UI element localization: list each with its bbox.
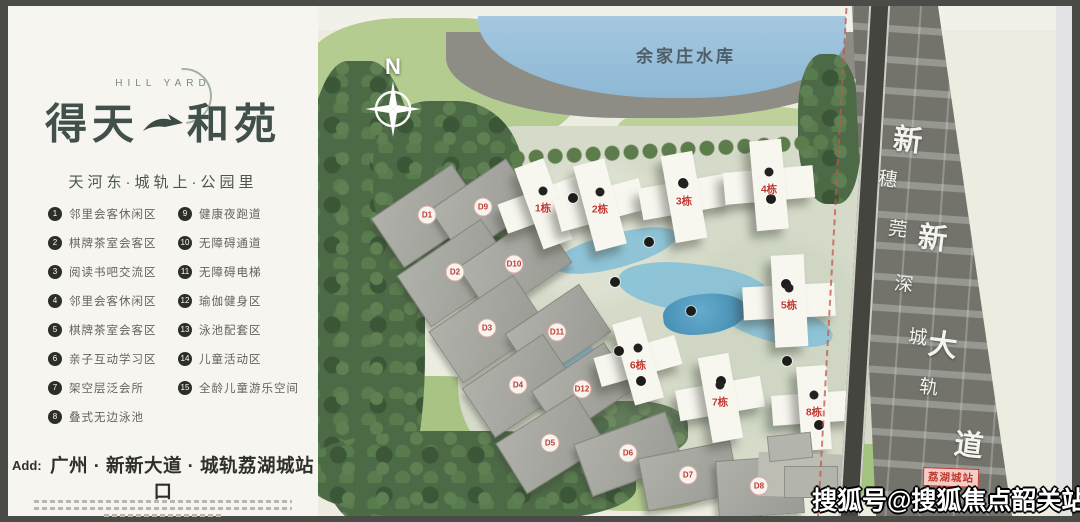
tower-dot [716,381,725,390]
legend-number-badge: 2 [48,236,62,250]
villa-label-D5: D5 [541,434,560,453]
tower-dot [810,391,819,400]
legend-column-1: 1邻里会客休闲区2棋牌茶室会客区3阅读书吧交流区4邻里会客休闲区5棋牌茶室会客区… [48,206,162,425]
legend-label: 邻里会客休闲区 [69,206,157,222]
legend-column-2: 9健康夜跑道10无障碍通道11无障碍电梯12瑜伽健身区13泳池配套区14儿童活动… [178,206,298,425]
villa-label-D1: D1 [418,206,437,225]
legend-label: 瑜伽健身区 [199,293,262,309]
amenity-marker [610,277,620,287]
compass-rose-icon [364,80,422,138]
legend-number-badge: 3 [48,265,62,279]
info-panel: HILL YARD 得天和苑 天河东·城轨上·公园里 1邻里会客休闲区2棋牌茶室… [8,6,318,516]
screenshot-root: HILL YARD 得天和苑 天河东·城轨上·公园里 1邻里会客休闲区2棋牌茶室… [0,0,1080,522]
legend-item-11: 11无障碍电梯 [178,264,298,280]
rail-name-char: 穗 [877,163,899,192]
villa-label-D8: D8 [750,477,769,496]
rail-name-char: 深 [893,268,915,297]
villa-label-D6: D6 [619,444,638,463]
tower-label-5栋: 5栋 [781,298,797,313]
brochure-sheet: HILL YARD 得天和苑 天河东·城轨上·公园里 1邻里会客休闲区2棋牌茶室… [8,6,1072,516]
tower-dot [596,188,605,197]
tower-label-3栋: 3栋 [676,194,692,209]
project-title-left: 得天 [45,103,139,149]
tower-label-4栋: 4栋 [761,182,777,197]
project-title-right: 和苑 [187,103,281,149]
legend-number-badge: 15 [178,381,192,395]
bird-swoosh-icon [141,103,185,145]
site-plan-map: 余家庄水库 D1D9D2D10D3D11D4D12D5D6D7D8 1栋 [318,6,1056,516]
legend-label: 叠式无边泳池 [69,409,144,425]
legend-number-badge: 6 [48,352,62,366]
legend-item-12: 12瑜伽健身区 [178,293,298,309]
legend-number-badge: 4 [48,294,62,308]
legend-label: 邻里会客休闲区 [69,293,157,309]
tower-dot [785,284,794,293]
amenity-legend: 1邻里会客休闲区2棋牌茶室会客区3阅读书吧交流区4邻里会客休闲区5棋牌茶室会客区… [48,206,298,425]
compass-north-label: N [358,54,428,80]
legend-label: 阅读书吧交流区 [69,264,157,280]
villa-label-D12: D12 [573,380,592,399]
legend-item-10: 10无障碍通道 [178,235,298,251]
address-text: 广州 · 新新大道 · 城轨荔湖城站口 [50,455,314,502]
legend-label: 亲子互动学习区 [69,351,157,367]
project-tagline: 天河东·城轨上·公园里 [8,171,318,192]
tower-label-6栋: 6栋 [630,358,646,373]
watermark-text: 搜狐号@搜狐焦点韶关站 [812,481,1080,517]
brand-english: HILL YARD [8,64,318,89]
legend-label: 棋牌茶室会客区 [69,322,157,338]
tower-dot [680,180,689,189]
tower-label-2栋: 2栋 [592,202,608,217]
tower-label-1栋: 1栋 [535,201,551,216]
legend-item-7: 7架空层泛会所 [48,380,162,396]
legend-label: 无障碍通道 [199,235,262,251]
avenue-name-char: 新 [916,213,950,258]
amenity-marker [782,356,792,366]
legend-label: 全龄儿童游乐空间 [199,380,299,396]
legend-number-badge: 5 [48,323,62,337]
legend-item-13: 13泳池配套区 [178,322,298,338]
address-line: Add: 广州 · 新新大道 · 城轨荔湖城站口 [8,452,318,504]
legend-item-3: 3阅读书吧交流区 [48,264,162,280]
logo: HILL YARD 得天和苑 天河东·城轨上·公园里 [8,64,318,192]
legend-number-badge: 9 [178,207,192,221]
compass: N [358,54,428,143]
legend-item-6: 6亲子互动学习区 [48,351,162,367]
villa-label-D2: D2 [446,263,465,282]
legend-number-badge: 8 [48,410,62,424]
legend-label: 儿童活动区 [199,351,262,367]
tower-label-8栋: 8栋 [806,405,822,420]
villa-label-D10: D10 [505,255,524,274]
legend-number-badge: 7 [48,381,62,395]
villa-label-D3: D3 [478,319,497,338]
reservoir-label: 余家庄水库 [636,42,736,67]
rail-name-char: 轨 [918,371,940,400]
rail-name-char: 城 [907,321,929,350]
legend-number-badge: 13 [178,323,192,337]
villa-label-D11: D11 [548,323,567,342]
legend-item-9: 9健康夜跑道 [178,206,298,222]
legend-number-badge: 11 [178,265,192,279]
legend-label: 泳池配套区 [199,322,262,338]
legend-label: 架空层泛会所 [69,380,144,396]
legend-item-2: 2棋牌茶室会客区 [48,235,162,251]
avenue-name-char: 道 [952,420,986,465]
address-prefix: Add: [12,458,42,473]
amenity-marker [568,193,578,203]
avenue-name-char: 大 [926,320,960,365]
legend-number-badge: 1 [48,207,62,221]
legend-number-badge: 14 [178,352,192,366]
amenity-marker [636,376,646,386]
right-margin-strip [1056,6,1072,516]
villa-label-D7: D7 [679,466,698,485]
legend-item-15: 15全龄儿童游乐空间 [178,380,298,396]
rail-name-char: 莞 [887,213,909,242]
amenity-marker [686,306,696,316]
legend-item-8: 8叠式无边泳池 [48,409,162,425]
legend-label: 无障碍电梯 [199,264,262,280]
avenue-name-char: 新 [891,115,925,160]
tower-dot [634,344,643,353]
legend-label: 健康夜跑道 [199,206,262,222]
tower-dot [539,187,548,196]
amenity-marker [614,346,624,356]
disclaimer-fineprint [34,500,292,521]
legend-item-14: 14儿童活动区 [178,351,298,367]
legend-item-4: 4邻里会客休闲区 [48,293,162,309]
legend-item-5: 5棋牌茶室会客区 [48,322,162,338]
villa-label-D4: D4 [509,376,528,395]
legend-label: 棋牌茶室会客区 [69,235,157,251]
amenity-marker [644,237,654,247]
legend-number-badge: 12 [178,294,192,308]
tower-dot [765,168,774,177]
project-title: 得天和苑 [8,103,318,155]
tower-label-7栋: 7栋 [712,395,728,410]
legend-number-badge: 10 [178,236,192,250]
villa-label-D9: D9 [474,198,493,217]
station-building-small [767,432,813,462]
legend-item-1: 1邻里会客休闲区 [48,206,162,222]
